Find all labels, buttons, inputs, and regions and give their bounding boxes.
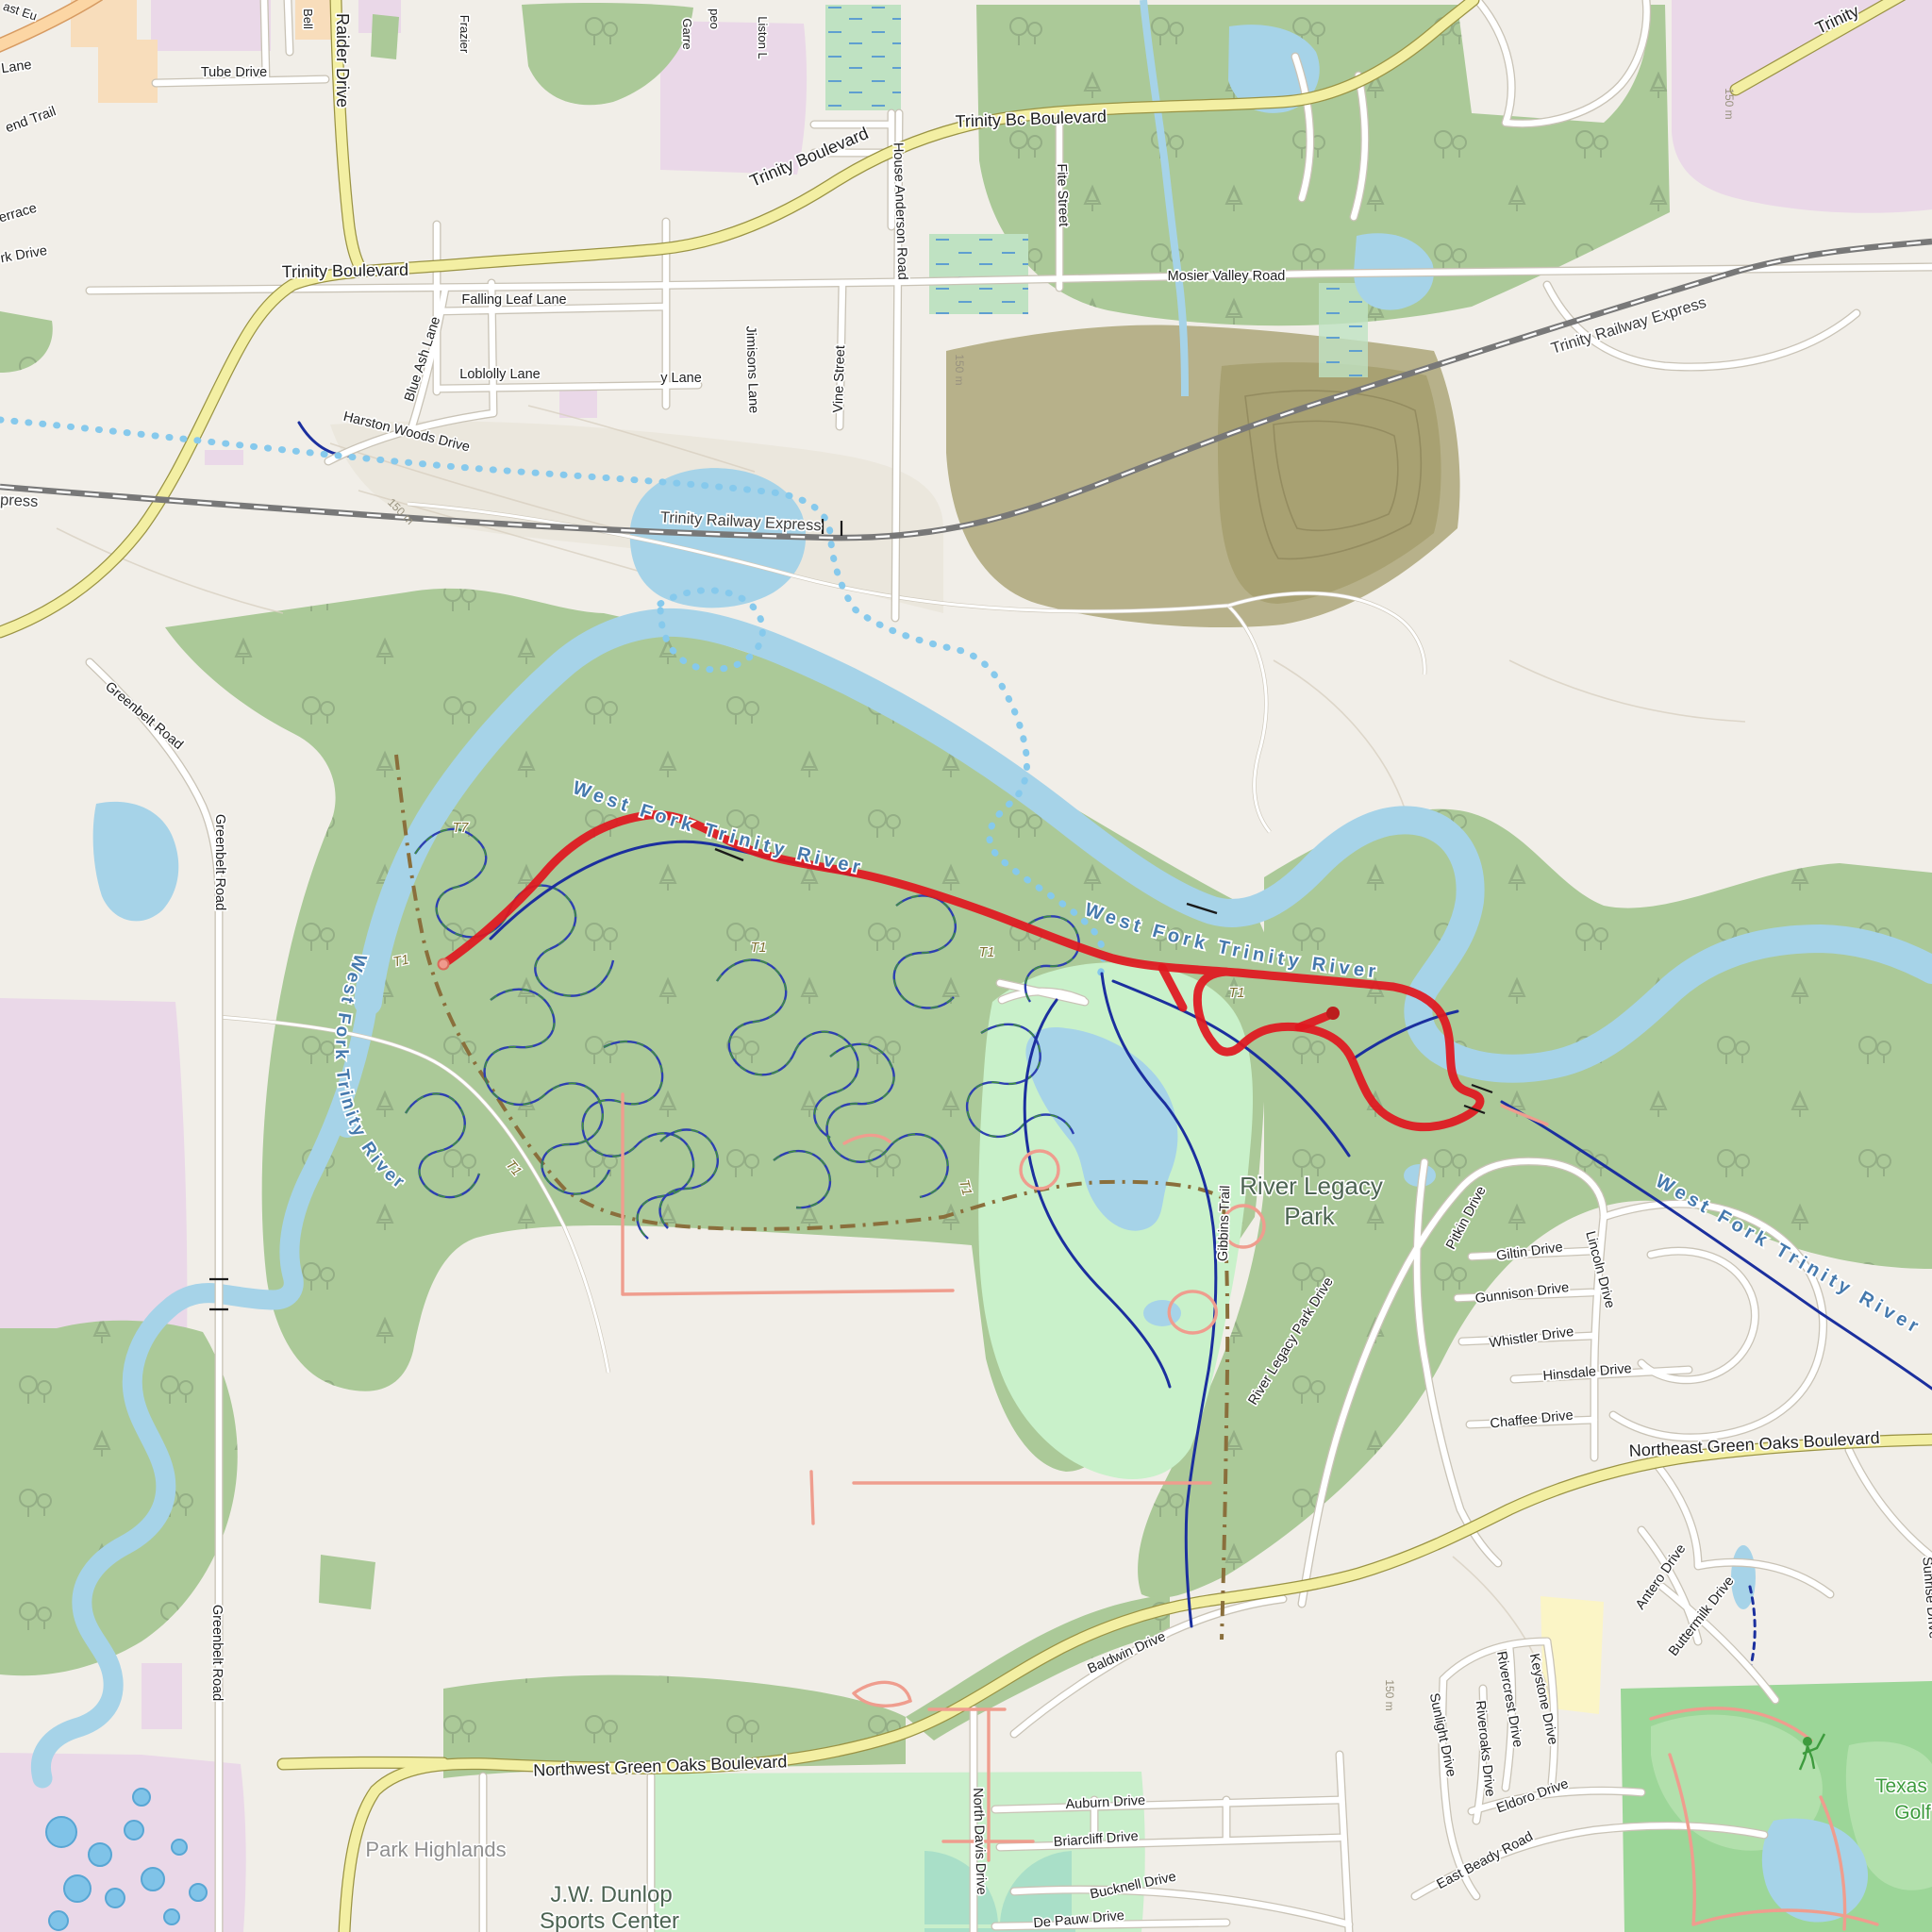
road-label-vine: Vine Street [831,345,848,413]
place-label-golf-2: Golf Club [1894,1802,1932,1824]
road-label-fite: Fite Street [1054,163,1071,226]
road-label-raider-drive: Raider Drive [333,13,352,108]
road-label-greenbelt-v1: Greenbelt Road [212,814,227,910]
road-label-bell: Bell [301,8,315,29]
contour-label-4: 150 m [1383,1679,1396,1710]
place-label-dunlop-2: Sports Center [540,1908,679,1932]
map-canvas[interactable]: ast Eu Lane end Trail errace rk Drive Tu… [0,0,1932,1932]
contour-label-2: 150 m [953,354,966,385]
road-label-peo: peo [708,8,722,29]
trail-ref-t1-c: T1 [979,945,995,960]
railway-label-frag: press [0,491,39,510]
trail-ref-t1-d: T1 [1229,986,1245,1001]
road-label-mosier: Mosier Valley Road [1168,269,1286,284]
place-label-dunlop-1: J.W. Dunlop [550,1882,672,1907]
place-label-park-highlands: Park Highlands [365,1838,506,1861]
road-label-tube-drive: Tube Drive [201,65,267,80]
road-label-loblolly-frag: y Lane [660,371,702,386]
route-end-marker[interactable] [1326,1007,1340,1020]
road-label-trinity-blvd-w: Trinity Boulevard [282,260,409,281]
road-label-greenbelt-v2: Greenbelt Road [209,1605,225,1701]
road-label-garrett: Garre [680,18,694,49]
place-label-river-legacy-2: Park [1284,1202,1335,1230]
trail-ref-t7: T7 [453,821,470,836]
road-label-gibbins-trail: Gibbins Trail [1216,1185,1234,1261]
route-start-marker[interactable] [439,959,449,970]
road-label-jimisons: Jimisons Lane [742,325,760,413]
road-label-frazier: Frazier [458,15,472,54]
road-label-loblolly: Loblolly Lane [459,367,540,382]
place-label-river-legacy-1: River Legacy [1240,1172,1383,1200]
place-label-golf-1: Texas Rangers [1875,1775,1932,1797]
trail-ref-t1-b: T1 [751,941,767,956]
road-label-liston: Liston L [756,16,770,59]
map-svg[interactable]: ast Eu Lane end Trail errace rk Drive Tu… [0,0,1932,1932]
road-label-falling-leaf: Falling Leaf Lane [461,292,566,308]
contour-label-3: 150 m [1723,88,1736,119]
